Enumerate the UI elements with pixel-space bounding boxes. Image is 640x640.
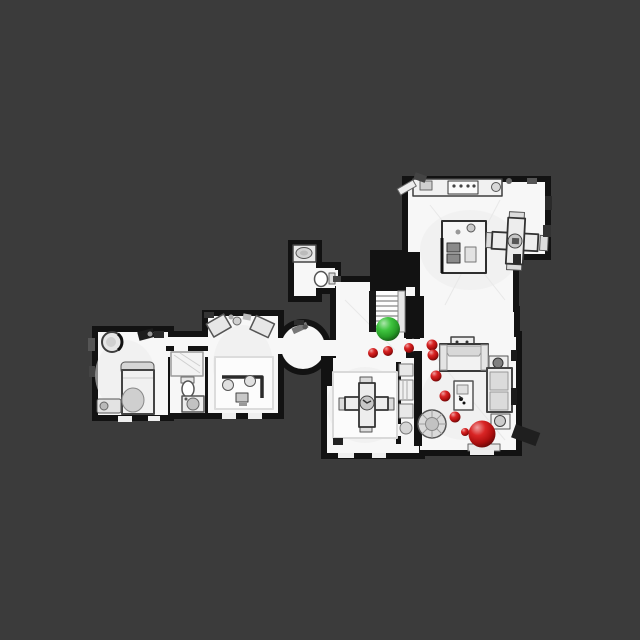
vestibule-floor	[281, 325, 325, 369]
waypoint-marker	[450, 412, 461, 423]
start-marker	[376, 317, 400, 341]
waypoint-marker	[428, 350, 439, 361]
counter-sink	[492, 183, 501, 192]
floorplan-render	[0, 0, 640, 640]
chair	[540, 235, 549, 250]
kitchen-island	[442, 221, 486, 273]
kitchen-bedroom-connector	[424, 312, 514, 339]
blanket	[122, 388, 144, 412]
goal-marker	[469, 421, 496, 448]
viewport-background	[0, 0, 640, 640]
faucet	[467, 224, 475, 232]
waypoint-marker	[404, 343, 414, 353]
office-chair	[245, 376, 256, 387]
stair-stringer-left	[369, 291, 376, 332]
waypoint-marker	[383, 346, 393, 356]
toilet	[315, 272, 328, 287]
waypoint-marker	[461, 428, 469, 436]
sink-basin	[447, 243, 460, 252]
window-notch	[406, 287, 415, 296]
waypoint-marker	[427, 340, 438, 351]
sink-basin	[447, 254, 460, 263]
laptop	[236, 393, 248, 402]
closet-shelf	[399, 364, 413, 376]
waypoint-marker	[431, 371, 442, 382]
waypoint-marker	[440, 391, 451, 402]
closet-shelf	[399, 380, 413, 400]
lamp	[493, 358, 503, 368]
toilet	[182, 381, 194, 397]
basket	[400, 422, 412, 434]
scene-viewport[interactable]	[0, 0, 640, 640]
office-chair	[223, 380, 234, 391]
kitchen-counter	[413, 179, 502, 196]
waypoint-marker	[368, 348, 378, 358]
closet-shelf	[399, 404, 413, 418]
